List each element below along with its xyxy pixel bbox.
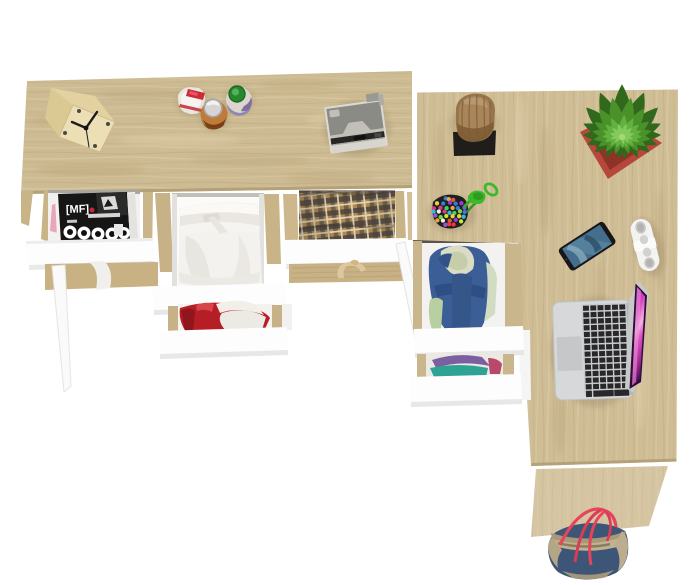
svg-text:[MF]: [MF] xyxy=(66,203,90,216)
